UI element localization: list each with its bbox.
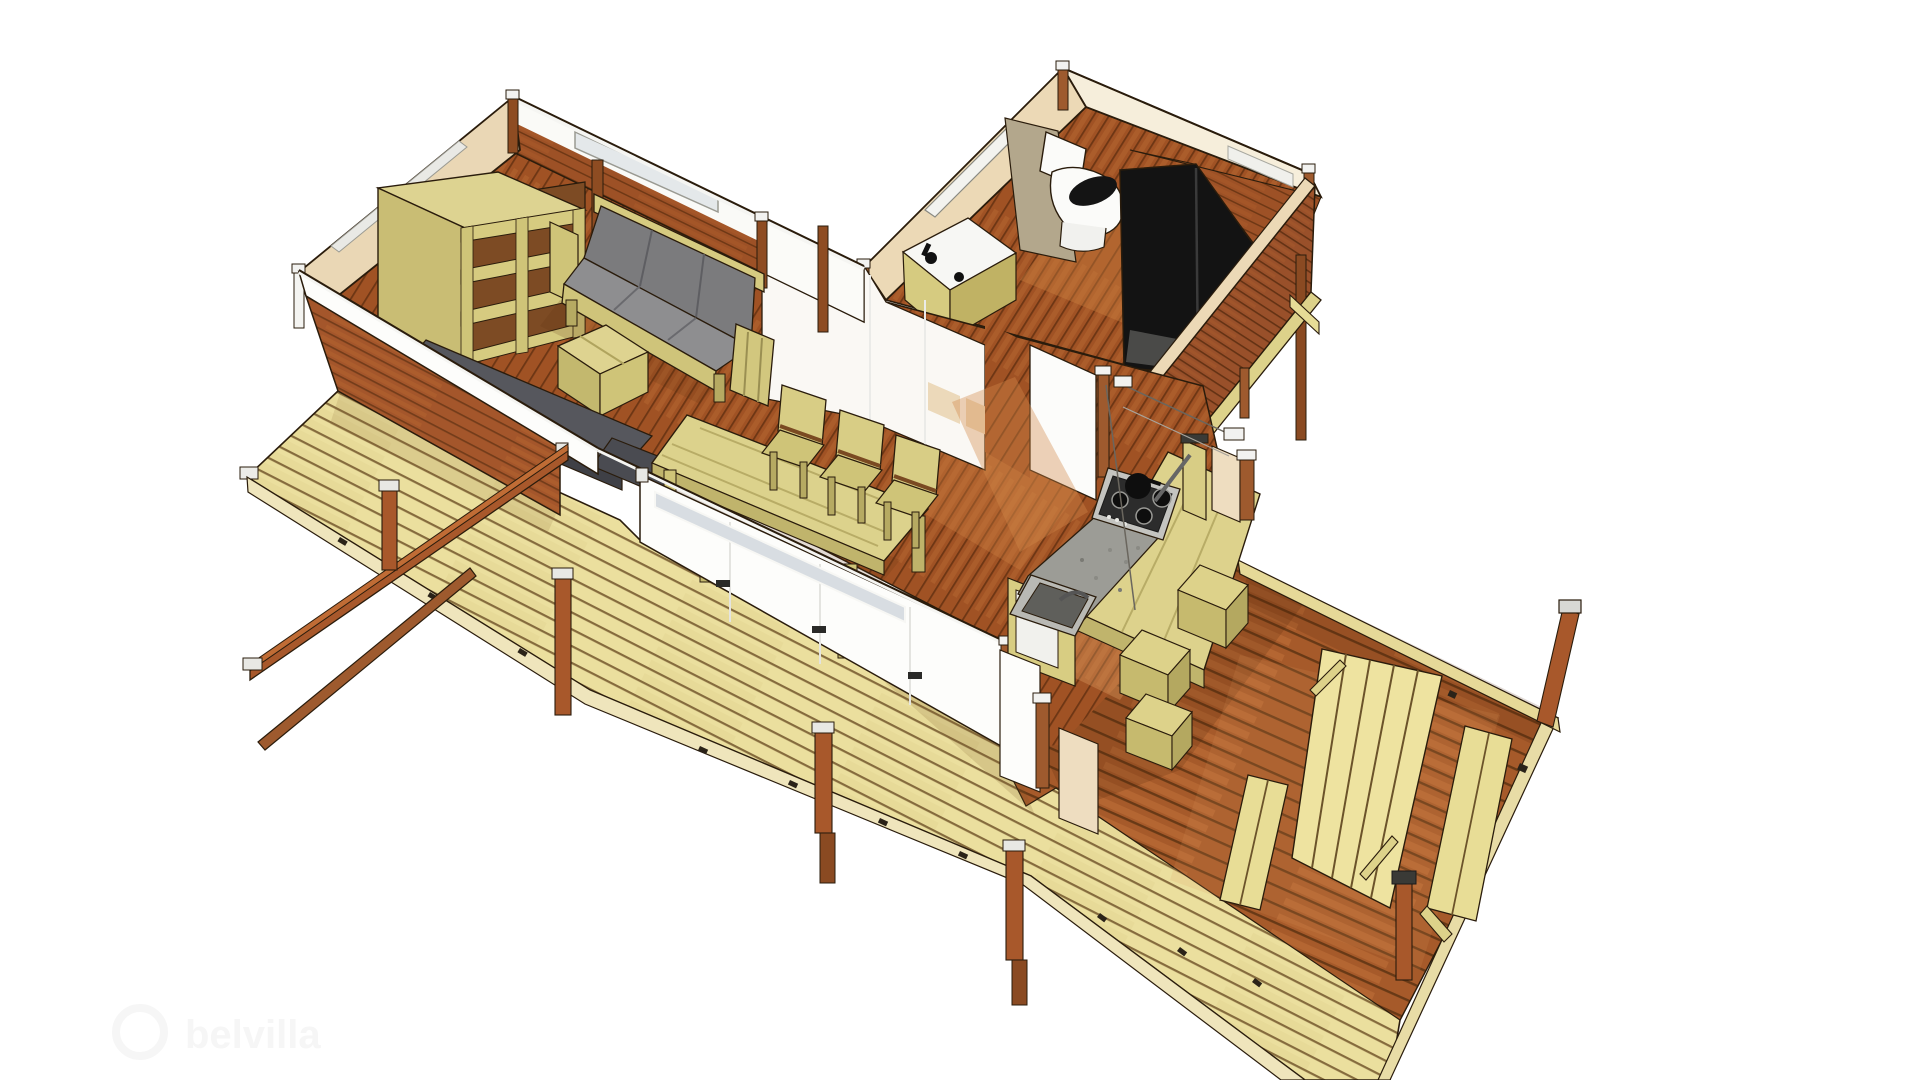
svg-text:belvilla: belvilla (185, 1013, 321, 1057)
